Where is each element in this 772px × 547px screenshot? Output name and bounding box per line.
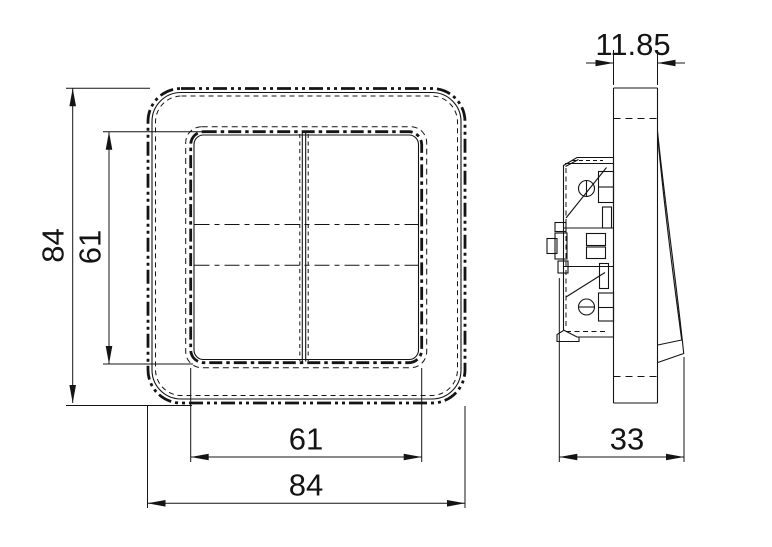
side-plate (614, 88, 658, 403)
dim-label-front-inner-height: 61 (73, 230, 108, 264)
drawing-page: 84 61 61 84 (0, 0, 772, 547)
rib-lower (600, 264, 609, 289)
mounting-mechanism (547, 158, 614, 342)
arrowhead (106, 132, 113, 150)
latch-block-lower (587, 247, 606, 259)
dimensions: 84 61 61 84 (36, 27, 686, 508)
dim-label-front-outer-height: 84 (36, 228, 71, 262)
rocker-profile (658, 131, 684, 363)
dim-label-side-thickness: 11.85 (595, 27, 670, 62)
outer-plate-hidden-edge (156, 96, 458, 396)
arrowhead (148, 500, 166, 507)
engineering-drawing: 84 61 61 84 (0, 0, 772, 547)
dim-side-depth: 33 (559, 278, 684, 462)
dim-front-inner-width: 61 (191, 368, 422, 462)
dim-label-front-inner-width: 61 (289, 422, 323, 457)
outer-plate-edge (152, 93, 461, 400)
arrowhead (106, 346, 113, 364)
claw-tab-top (555, 223, 566, 232)
arrowhead (69, 385, 76, 403)
rib-upper (603, 207, 612, 228)
arrowhead (666, 454, 684, 461)
side-view (547, 88, 684, 403)
dim-side-thickness: 11.85 (586, 27, 685, 85)
arrowhead (191, 454, 209, 461)
latch-block-upper (587, 234, 606, 246)
dim-label-front-outer-width: 84 (289, 468, 323, 503)
front-view (148, 89, 465, 404)
arrowhead (559, 454, 577, 461)
arrowhead (404, 454, 422, 461)
arrowhead (69, 88, 76, 106)
arrowhead (447, 500, 465, 507)
dim-label-side-depth: 33 (610, 422, 644, 457)
dim-front-outer-height: 84 (36, 88, 193, 405)
